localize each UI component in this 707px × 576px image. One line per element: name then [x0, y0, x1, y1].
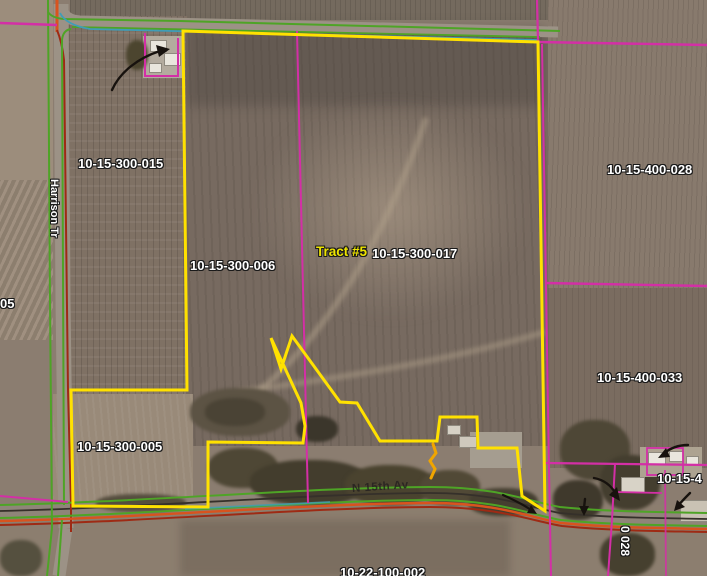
parcel-label-partial: 05 — [0, 297, 14, 310]
parcel-label: 10-15-400-028 — [607, 163, 692, 176]
parcel-label: 10-15-300-015 — [78, 157, 163, 170]
parcel-label: 10-15-300-005 — [77, 440, 162, 453]
parcel-map: 10-15-300-015 10-15-300-006 Tract #5 10-… — [0, 0, 707, 576]
parcel-label-partial: 10-22-100-002 — [340, 566, 425, 576]
tract-label: Tract #5 — [316, 245, 367, 259]
parcel-label-partial: 10-15-4 — [657, 472, 702, 485]
parcel-label: 10-15-300-006 — [190, 259, 275, 272]
parcel-label: 10-15-300-017 — [372, 247, 457, 260]
parcel-label: 10-15-400-033 — [597, 371, 682, 384]
road-label-harrison-tr: Harrison Tr — [48, 179, 59, 238]
road-label-n-15th-av: N 15th Av — [352, 479, 409, 495]
map-labels: 10-15-300-015 10-15-300-006 Tract #5 10-… — [0, 0, 707, 576]
parcel-label-rotated: 0 028 — [619, 526, 631, 556]
